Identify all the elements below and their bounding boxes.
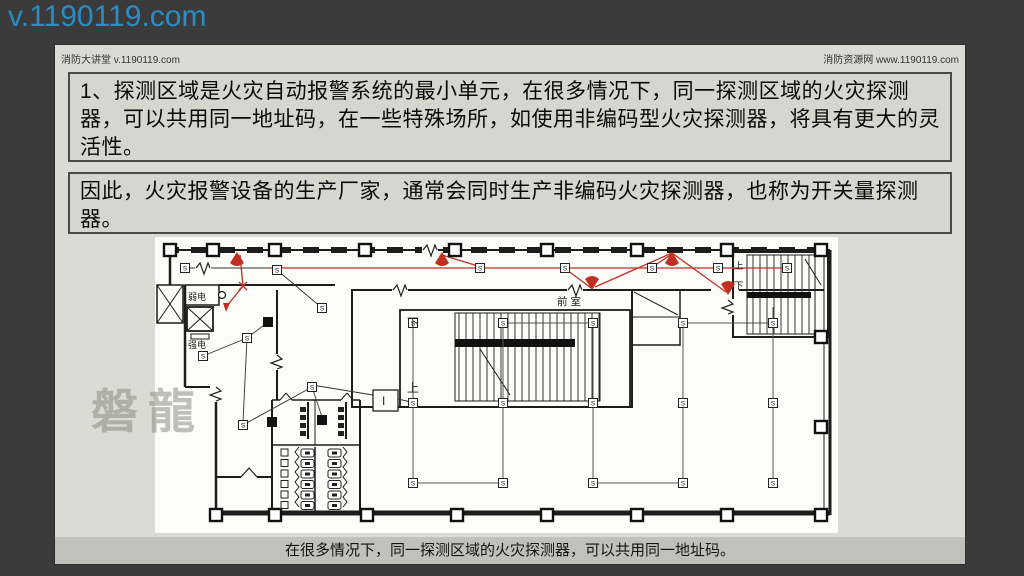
text-box-detection-zone: 1、探测区域是火灾自动报警系统的最小单元，在很多情况下，同一探测区域的火灾探测器… [68,72,952,162]
smoke-detector: S [648,264,657,273]
svg-text:S: S [275,268,280,275]
smoke-detector: S [409,399,418,408]
svg-text:S: S [310,385,315,392]
svg-text:S: S [771,481,776,488]
smoke-detector: S [589,479,598,488]
smoke-detector: S [181,264,190,273]
site-watermark: v.1190119.com [8,0,206,34]
svg-text:S: S [563,266,568,273]
svg-text:S: S [591,321,596,328]
zone-marker-label: I [382,394,385,408]
zone-marker-box [373,390,398,411]
svg-text:S: S [411,401,416,408]
smoke-detector: S [679,319,688,328]
svg-text:S: S [681,481,686,488]
smoke-detector: S [308,383,317,392]
smoke-detector: S [589,319,598,328]
smoke-detector: S [499,319,508,328]
svg-text:S: S [785,266,790,273]
smoke-detector: S [273,266,282,275]
stair-down-label-right: 下 [734,281,744,292]
svg-text:S: S [716,266,721,273]
video-frame: { "overlay": { "site": "v.1190119.com" }… [0,0,1024,576]
smoke-detector: S [769,479,778,488]
svg-text:S: S [591,481,596,488]
smoke-detector: S [499,479,508,488]
strong-power-room-label: 强电 [188,339,206,350]
svg-text:S: S [411,481,416,488]
svg-text:S: S [241,423,246,430]
stair-up-label-right: 上 [734,261,744,272]
slide-header-right: 消防资源网 www.1190119.com [823,51,959,66]
alarm-wiring [223,253,787,312]
smoke-detector: S [199,352,208,361]
smoke-detector: S [499,399,508,408]
stair-up-label: 上 [407,381,419,395]
smoke-detector: S [409,479,418,488]
front-room-label: 前室 [557,295,584,308]
weak-power-room-label: 弱电 [188,291,206,302]
smoke-detector: S [589,399,598,408]
svg-text:S: S [501,321,506,328]
svg-text:S: S [183,266,188,273]
alarm-bell-icon [585,276,599,290]
slide: 消防大讲堂 v.1190119.com 消防资源网 www.1190119.co… [55,45,965,564]
svg-text:S: S [650,266,655,273]
smoke-detector: S [243,334,252,343]
smoke-detector: S [679,479,688,488]
toilet-fixtures [281,407,344,510]
svg-text:S: S [501,401,506,408]
svg-text:S: S [681,401,686,408]
svg-text:S: S [320,306,325,313]
smoke-detector: S [476,264,485,273]
alarm-bell-icon [230,252,244,266]
alarm-bell-icon [665,252,679,266]
svg-text:S: S [245,336,250,343]
caption-bar: 在很多情况下，同一探测区域的火灾探测器，可以共用同一地址码。 [55,537,965,564]
smoke-detector: S [783,264,792,273]
floor-plan-drawing: SSSSSSSSSSSSSSSSSSSSSSSSSSS 弱电 强电 前室 下 [155,237,838,533]
svg-text:S: S [501,481,506,488]
svg-text:S: S [681,321,686,328]
smoke-detector: S [318,304,327,313]
smoke-detector: S [714,264,723,273]
svg-text:S: S [771,321,776,328]
smoke-detector: S [769,399,778,408]
svg-text:S: S [591,401,596,408]
panlong-watermark: 磐龍 [91,373,205,442]
smoke-detector: S [769,319,778,328]
slide-header-left: 消防大讲堂 v.1190119.com [61,51,180,66]
smoke-detector: S [561,264,570,273]
text-box-manufacturers: 因此，火灾报警设备的生产厂家，通常会同时生产非编码火灾探测器，也称为开关量探测器… [68,172,952,234]
smoke-detector: S [679,399,688,408]
stair-down-label: 下 [407,316,419,330]
svg-text:S: S [771,401,776,408]
svg-text:S: S [478,266,483,273]
smoke-detector: S [239,421,248,430]
svg-text:S: S [201,354,206,361]
floor-plan: SSSSSSSSSSSSSSSSSSSSSSSSSSS 弱电 强电 前室 下 [155,237,838,533]
